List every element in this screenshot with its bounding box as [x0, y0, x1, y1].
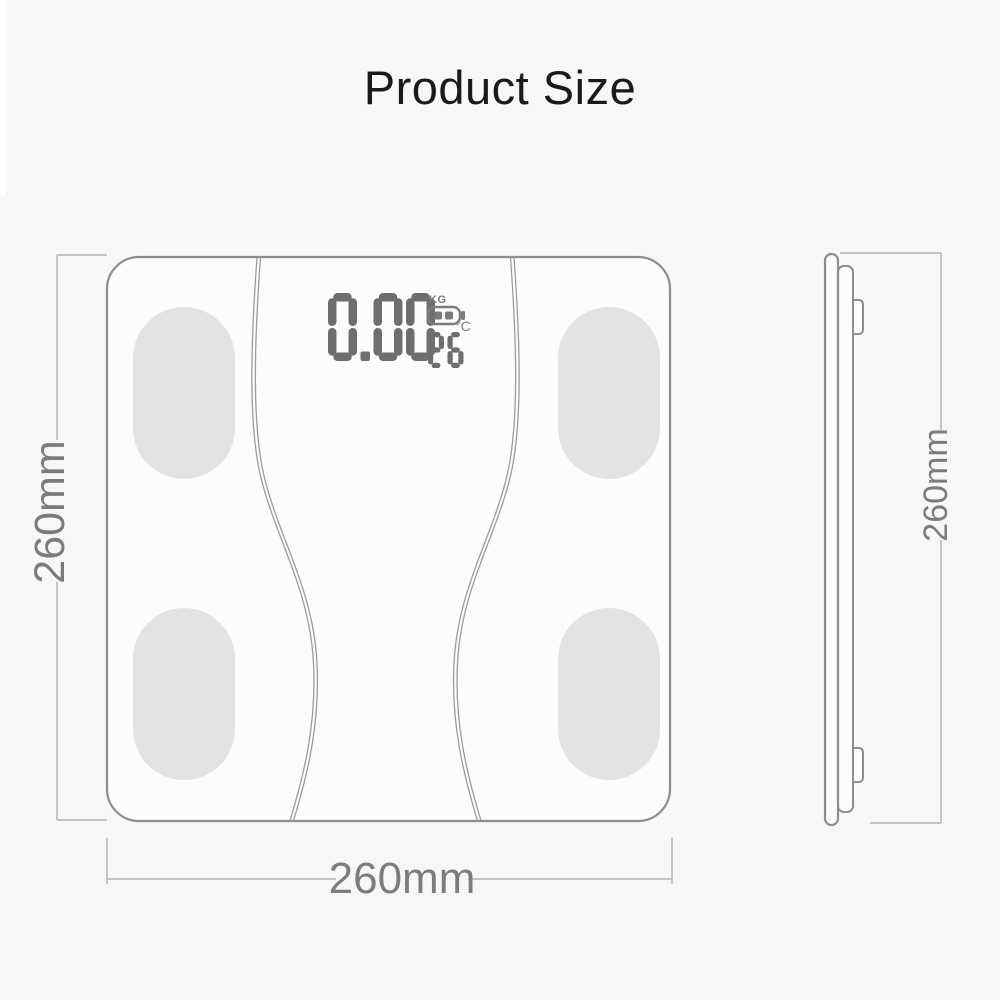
- electrode-pad-bottom-right: [558, 608, 660, 780]
- product-size-diagram: Product Size KG: [0, 0, 1000, 1000]
- electrode-pad-top-left: [133, 307, 235, 479]
- scale-front-view: KG °C: [107, 257, 670, 821]
- front-width-label: 260mm: [329, 854, 476, 903]
- dimension-front-height: 260mm: [26, 255, 107, 820]
- weight-unit-label: KG: [429, 294, 447, 306]
- scale-side-view: [825, 254, 863, 825]
- diagram-canvas: KG °C 260mm: [0, 0, 1000, 1000]
- temperature-unit-label: °C: [455, 318, 471, 334]
- electrode-pad-top-right: [558, 307, 660, 479]
- side-body-layer: [838, 266, 853, 812]
- front-height-label: 260mm: [26, 440, 74, 583]
- side-glass-layer: [825, 254, 838, 825]
- side-height-label: 260mm: [917, 428, 955, 541]
- dimension-side-height: 260mm: [840, 253, 955, 823]
- electrode-pad-bottom-left: [133, 608, 235, 780]
- dimension-front-width: 260mm: [107, 838, 672, 903]
